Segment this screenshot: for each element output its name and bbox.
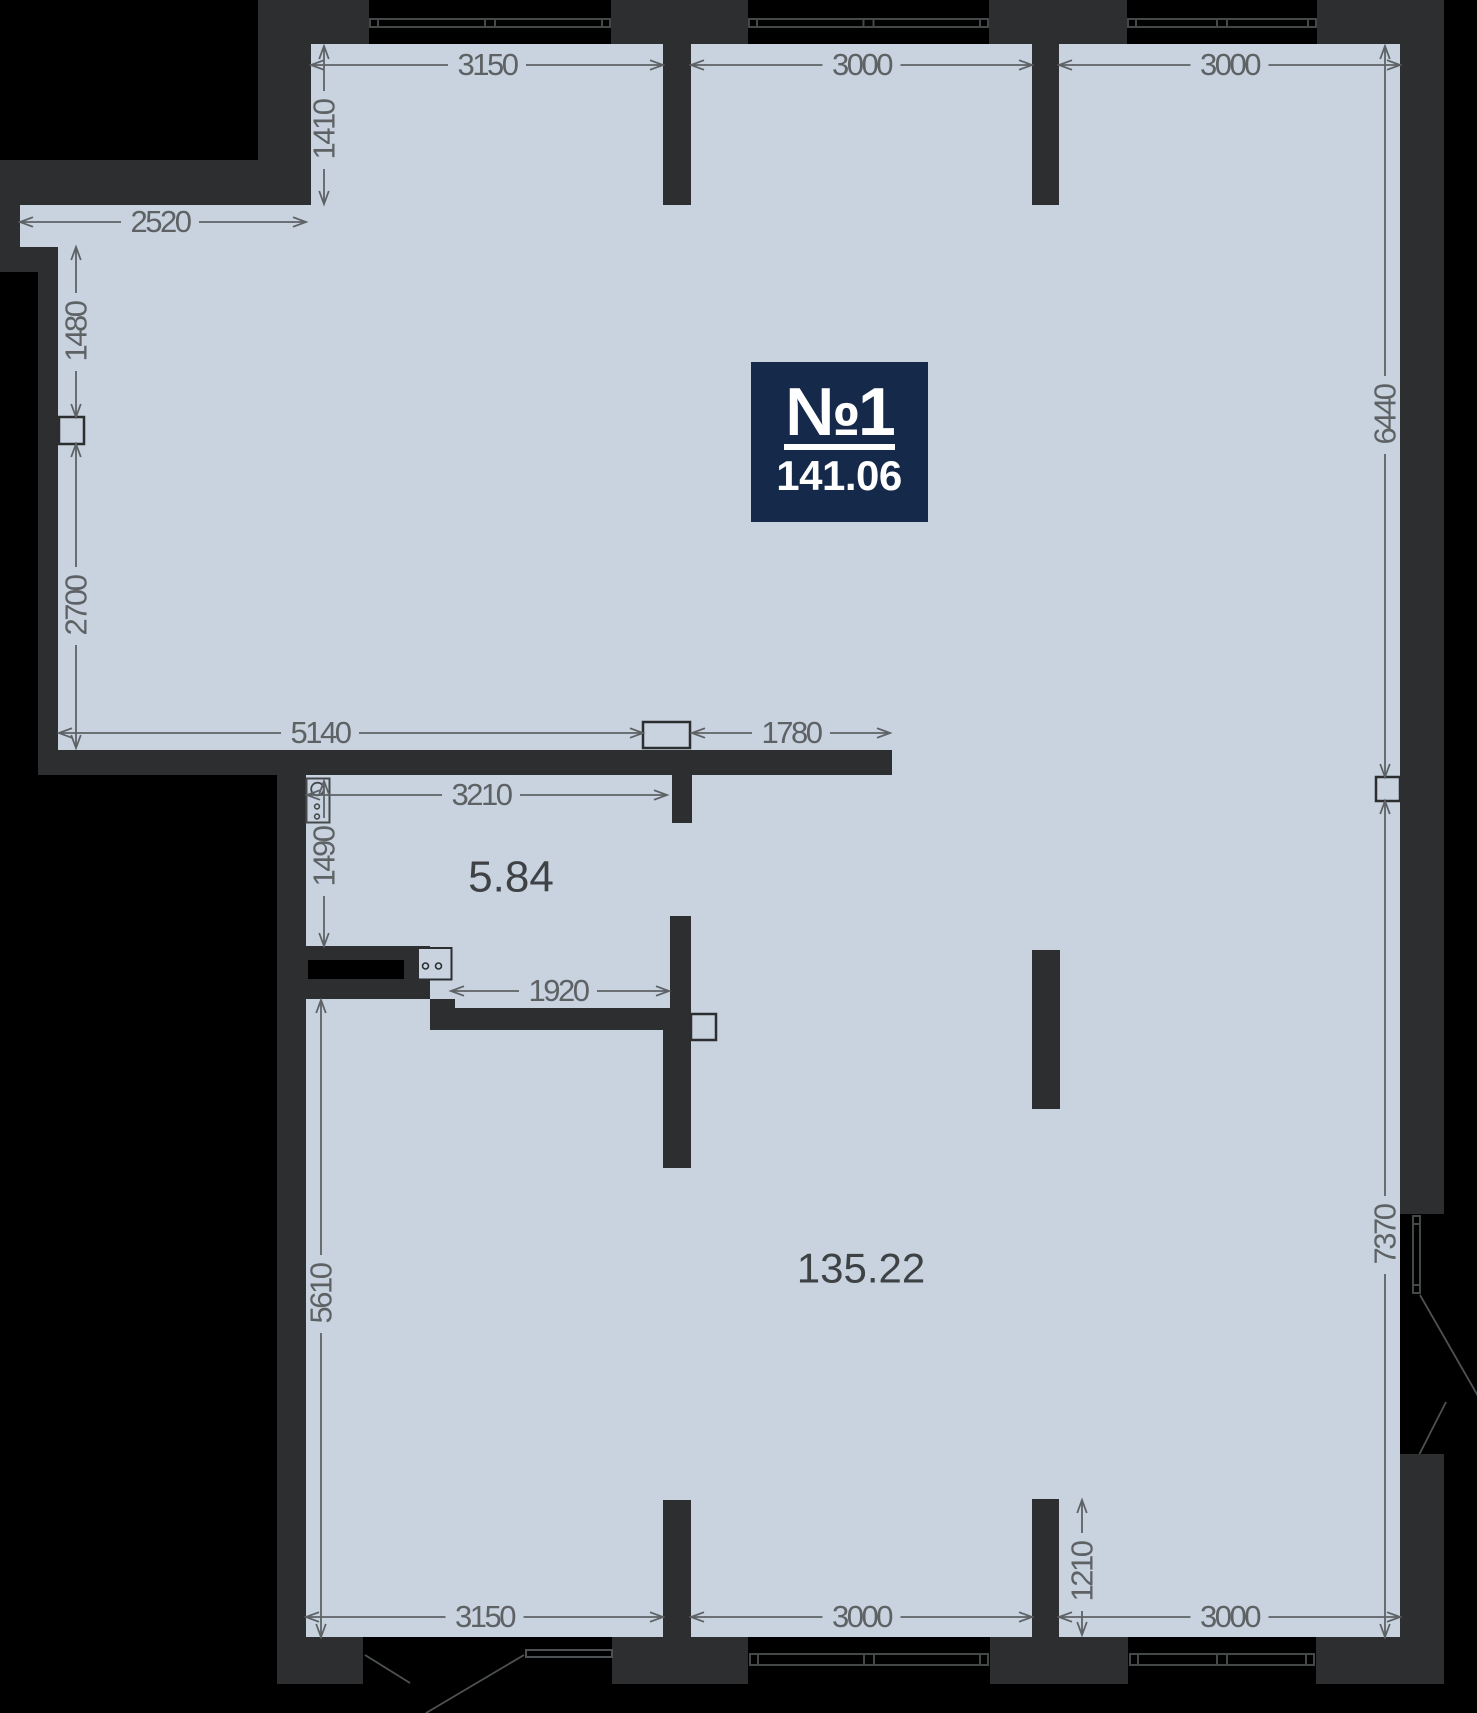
svg-text:3150: 3150 xyxy=(455,1599,516,1634)
svg-text:1780: 1780 xyxy=(762,715,823,750)
svg-text:5140: 5140 xyxy=(291,715,352,750)
svg-text:135.22: 135.22 xyxy=(797,1245,925,1292)
svg-text:3000: 3000 xyxy=(1200,1599,1261,1634)
svg-text:1210: 1210 xyxy=(1065,1540,1100,1601)
svg-text:3150: 3150 xyxy=(458,47,519,82)
svg-text:1480: 1480 xyxy=(59,300,94,361)
svg-text:№1: №1 xyxy=(785,374,894,450)
svg-text:2700: 2700 xyxy=(59,574,94,635)
svg-text:5.84: 5.84 xyxy=(468,853,554,902)
svg-text:3000: 3000 xyxy=(832,1599,893,1634)
svg-text:5610: 5610 xyxy=(304,1262,339,1323)
svg-text:3210: 3210 xyxy=(452,777,513,812)
svg-text:3000: 3000 xyxy=(1200,47,1261,82)
svg-text:7370: 7370 xyxy=(1368,1203,1403,1264)
svg-text:2520: 2520 xyxy=(131,204,192,239)
svg-text:1920: 1920 xyxy=(529,973,590,1008)
svg-text:1410: 1410 xyxy=(307,98,342,159)
svg-text:3000: 3000 xyxy=(832,47,893,82)
svg-text:141.06: 141.06 xyxy=(776,452,901,499)
svg-text:1490: 1490 xyxy=(307,825,342,886)
svg-text:6440: 6440 xyxy=(1368,383,1403,444)
